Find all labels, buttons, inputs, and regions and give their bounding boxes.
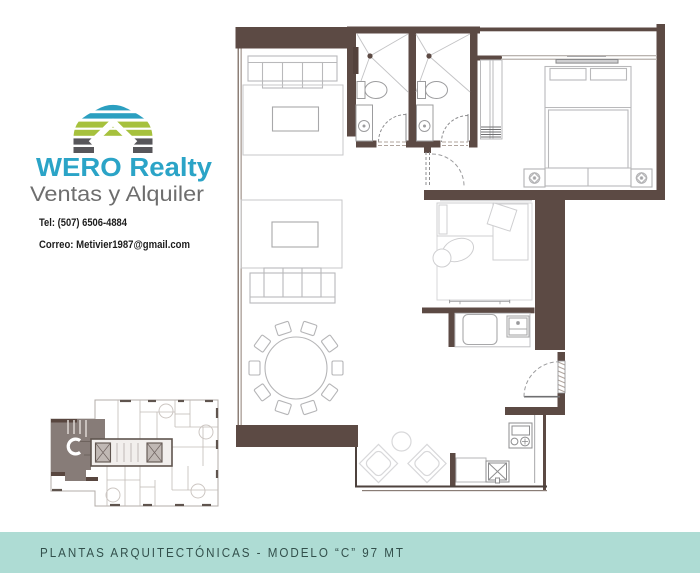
svg-text:Ventas y Alquiler: Ventas y Alquiler — [30, 182, 204, 206]
svg-text:PLANTAS ARQUITECTÓNICAS - MODE: PLANTAS ARQUITECTÓNICAS - MODELO “C” 97 … — [40, 545, 405, 560]
svg-text:WERO Realty: WERO Realty — [36, 154, 213, 182]
svg-text:Correo: Metivier1987@gmail.co: Correo: Metivier1987@gmail.com — [39, 239, 190, 251]
svg-text:Tel: (507) 6506-4884: Tel: (507) 6506-4884 — [39, 217, 128, 229]
